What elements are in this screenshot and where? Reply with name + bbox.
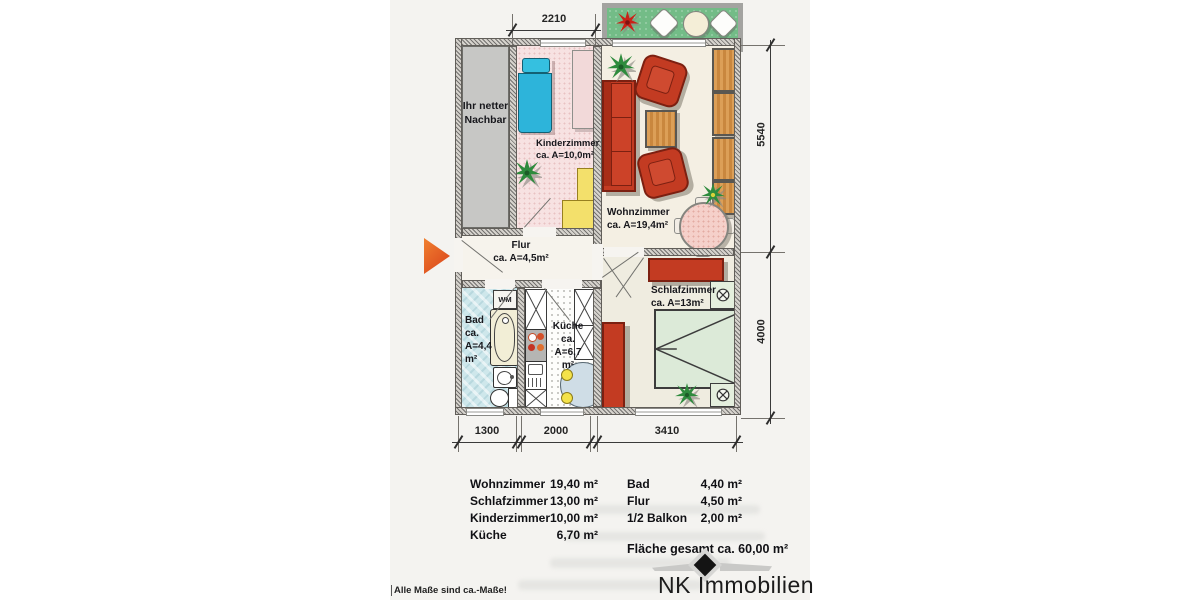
area-row-value: 10,00 m² xyxy=(530,511,598,525)
kids-bed xyxy=(518,58,552,132)
door-opening-wohnzimmer xyxy=(592,244,603,280)
window-balcony-door xyxy=(612,39,706,47)
extension-line xyxy=(741,418,785,419)
wardrobe xyxy=(602,322,625,409)
extension-line xyxy=(458,416,459,452)
wall-bad-kueche xyxy=(517,288,525,407)
window-bad xyxy=(466,408,504,416)
sofa-cushion xyxy=(611,83,632,118)
window-kueche xyxy=(540,408,584,416)
area-row-value: 4,50 m² xyxy=(674,494,742,508)
sideboard xyxy=(648,258,724,282)
area-row-value: 6,70 m² xyxy=(530,528,598,542)
scanned-floor-plan-page: { "plan": { "dims": { "top": "2210", "ri… xyxy=(0,0,1200,600)
door-knob xyxy=(561,392,573,404)
wall-kueche-schlafzimmer xyxy=(593,288,602,407)
company-name: NK Immobilien xyxy=(658,572,814,599)
drainer-lines xyxy=(528,378,543,387)
extension-line xyxy=(521,416,522,452)
room-neighbor xyxy=(462,46,509,228)
bathroom-sink xyxy=(493,367,517,388)
plant-icon xyxy=(674,382,700,408)
kids-wardrobe xyxy=(572,50,595,129)
window-schlafzimmer xyxy=(635,408,722,416)
label-bad: Bad ca. A=4,4 m² xyxy=(465,314,493,366)
sink-tap xyxy=(510,375,514,379)
label-wohnzimmer: Wohnzimmer ca. A=19,4m² xyxy=(607,206,687,232)
door-opening-entry xyxy=(454,238,463,272)
armchair-seat xyxy=(645,65,675,95)
label-schlafzimmer: Schlafzimmer ca. A=13m² xyxy=(651,284,735,310)
footnote: Alle Maße sind ca.-Maße! xyxy=(391,585,507,596)
extension-line xyxy=(741,45,785,46)
balcony-table xyxy=(683,11,709,37)
dimension-top: 2210 xyxy=(528,13,580,25)
toilet xyxy=(490,388,517,406)
label-kinderzimmer: Kinderzimmer ca. A=10,0m² xyxy=(536,138,602,163)
door-opening-bad xyxy=(485,279,515,289)
area-row-value: 4,40 m² xyxy=(674,477,742,491)
label-kueche: Küche ca. A=6,7 m² xyxy=(547,320,589,372)
wall-right xyxy=(734,38,741,415)
entry-arrow xyxy=(424,238,450,274)
dimension-line-right xyxy=(770,40,771,424)
dimension-bottom-left: 1300 xyxy=(462,425,512,437)
dimension-line-top xyxy=(506,30,601,31)
wall-neighbor-divider xyxy=(509,46,517,236)
stove xyxy=(525,329,547,362)
label-flur: Flur ca. A=4,5m² xyxy=(485,239,557,265)
red-plant-icon xyxy=(615,10,640,35)
area-row-label: Bad xyxy=(627,477,650,491)
area-row-label: Küche xyxy=(470,528,507,542)
area-row-value: 2,00 m² xyxy=(674,511,742,525)
sofa-cushion xyxy=(611,151,632,186)
area-row-value: 19,40 m² xyxy=(530,477,598,491)
dimension-right-upper: 5540 xyxy=(756,113,769,157)
extension-line xyxy=(741,252,785,253)
floor-plan-sheet: WM xyxy=(390,0,810,600)
label-neighbor: Ihr netter Nachbar xyxy=(462,100,509,127)
burner xyxy=(537,333,544,340)
sofa-cushion xyxy=(611,117,632,152)
balcony-chair xyxy=(709,9,739,39)
kitchen-sink-basin xyxy=(528,364,543,375)
balcony-chair xyxy=(648,7,679,38)
door-opening-kinderzimmer xyxy=(523,227,556,237)
extension-line xyxy=(597,416,598,452)
dimension-bottom-mid: 2000 xyxy=(531,425,581,437)
kids-closet xyxy=(562,200,595,229)
kitchen-cabinet xyxy=(525,389,547,408)
window-kinderzimmer xyxy=(540,39,586,47)
wall-left xyxy=(455,38,462,415)
bathtub xyxy=(490,309,519,366)
sofa xyxy=(602,80,636,192)
toilet-bowl xyxy=(490,389,509,407)
extension-line xyxy=(590,416,591,452)
bathtub-drain xyxy=(502,317,509,324)
kitchen-sink-unit xyxy=(525,361,547,390)
bed-body xyxy=(518,73,552,133)
extension-line xyxy=(736,416,737,452)
bed-pillow xyxy=(522,58,550,73)
kitchen-cabinet xyxy=(525,289,547,330)
coffee-table xyxy=(645,110,677,148)
double-bed xyxy=(654,309,738,389)
nightstand xyxy=(710,383,736,407)
armchair-seat xyxy=(647,158,676,187)
logo-wing-right xyxy=(720,563,772,571)
sofa-backrest xyxy=(604,82,611,186)
burner xyxy=(528,344,535,351)
plant-icon xyxy=(700,182,726,208)
dimension-right-lower: 4000 xyxy=(756,310,769,354)
burner xyxy=(537,344,544,351)
plant-icon xyxy=(606,52,636,82)
dimension-bottom-right: 3410 xyxy=(642,425,692,437)
area-row-value: 13,00 m² xyxy=(530,494,598,508)
door-opening-kueche xyxy=(542,279,582,289)
burner xyxy=(528,333,537,342)
area-row-label: Flur xyxy=(627,494,650,508)
